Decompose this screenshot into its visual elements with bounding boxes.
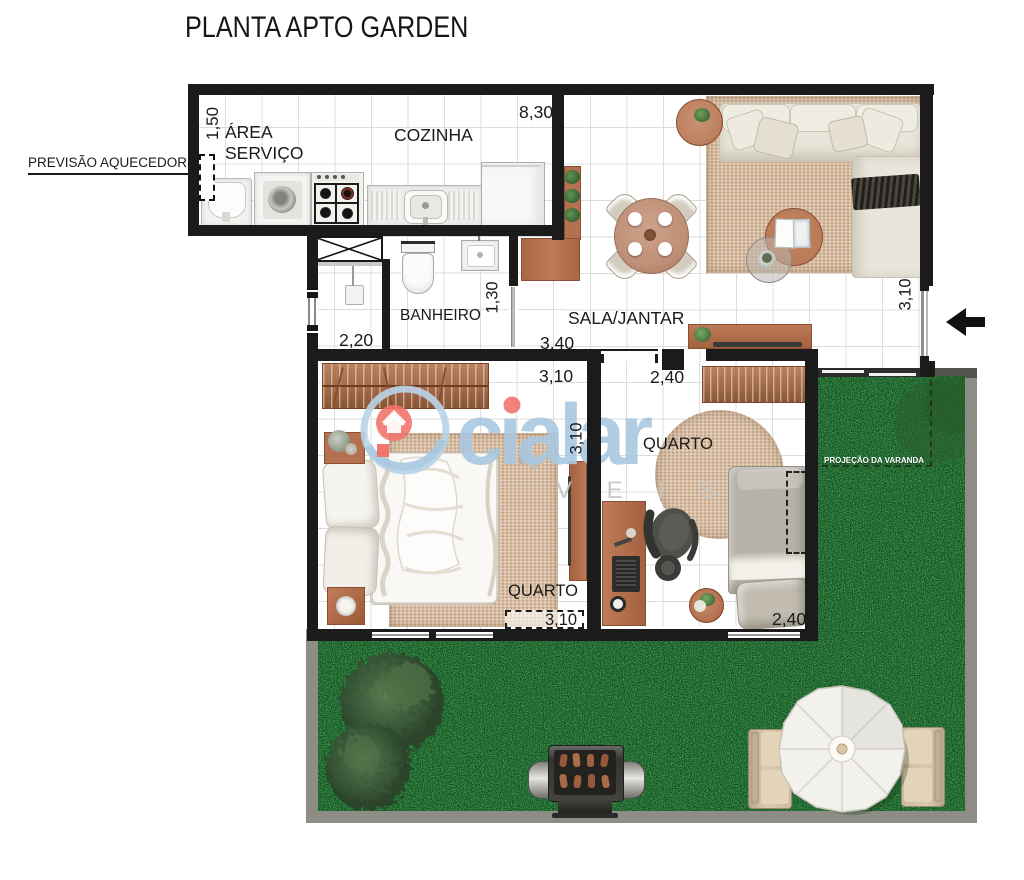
svg-text:cialar: cialar xyxy=(456,387,653,483)
